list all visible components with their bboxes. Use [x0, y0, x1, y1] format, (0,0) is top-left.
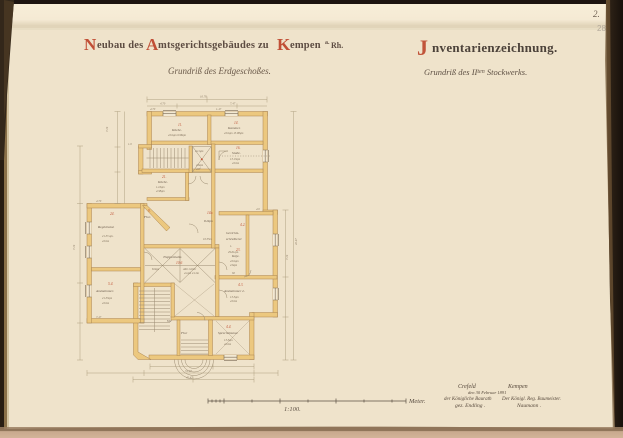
svg-text:empen: empen	[290, 40, 321, 51]
svg-text:1.0: 1.0	[128, 142, 132, 146]
svg-text:2.6qm: 2.6qm	[230, 263, 237, 267]
svg-text:8.0qm: 8.0qm	[152, 267, 159, 271]
svg-text:1.47: 1.47	[216, 107, 222, 111]
svg-text:4.61m: 4.61m	[224, 342, 231, 346]
svg-text:4.61qm 6.98qm: 4.61qm 6.98qm	[168, 133, 186, 137]
svg-text:Sprechzimmer.: Sprechzimmer.	[218, 331, 239, 335]
svg-text:4.61m: 4.61m	[232, 161, 239, 165]
svg-text:4.2.: 4.2.	[240, 223, 245, 227]
svg-text:14a.: 14a.	[207, 211, 213, 215]
svg-text:7.14: 7.14	[105, 126, 109, 132]
svg-text:4.70: 4.70	[96, 199, 102, 203]
svg-text:2.: 2.	[593, 9, 600, 19]
svg-text:4.61m: 4.61m	[230, 299, 237, 303]
svg-text:21.33 qm.: 21.33 qm.	[102, 234, 114, 238]
svg-text:60: 60	[232, 271, 236, 275]
svg-text:21.33qm: 21.33qm	[102, 296, 112, 300]
svg-text:21.: 21.	[162, 175, 167, 179]
svg-text:mtsgerichtsgebäudes zu: mtsgerichtsgebäudes zu	[158, 40, 269, 51]
svg-text:Flur: Flur	[180, 331, 188, 335]
svg-text:Vor: Vor	[167, 319, 173, 323]
svg-text:Koje.: Koje.	[231, 254, 240, 258]
svg-text:24.: 24.	[110, 212, 115, 216]
svg-text:11.: 11.	[178, 123, 182, 127]
svg-text:nventarienzeichnung.: nventarienzeichnung.	[432, 40, 558, 55]
svg-text:4.38qm: 4.38qm	[156, 189, 165, 193]
svg-text:Grundriß des IIten Stockwerks.: Grundriß des IIten Stockwerks.	[424, 67, 527, 77]
svg-text:9.: 9.	[148, 209, 151, 213]
svg-text:4.0°: 4.0°	[196, 167, 202, 171]
svg-text:Gerichts-: Gerichts-	[226, 231, 240, 235]
svg-text:4.61qm 13.98qm: 4.61qm 13.98qm	[224, 131, 243, 135]
svg-text:4.70: 4.70	[160, 102, 166, 106]
svg-text:5.4.: 5.4.	[108, 282, 113, 286]
svg-text:16.76: 16.76	[200, 95, 207, 99]
svg-text:16.: 16.	[236, 146, 241, 150]
svg-text:4.4.: 4.4.	[226, 325, 231, 329]
svg-text:42.47: 42.47	[294, 238, 298, 245]
svg-text:a.: a.	[325, 40, 330, 46]
svg-text:N: N	[84, 35, 97, 54]
svg-text:23.: 23.	[236, 248, 241, 252]
svg-text:Amtszimmer.: Amtszimmer.	[95, 289, 114, 293]
svg-text:Der Königl. Reg. Baumeister.: Der Königl. Reg. Baumeister.	[501, 397, 561, 402]
svg-text:Naumann .: Naumann .	[516, 403, 541, 409]
svg-text:7.14: 7.14	[72, 244, 76, 250]
svg-text:28: 28	[597, 24, 606, 33]
svg-text:Küche.: Küche.	[157, 180, 168, 184]
svg-text:eubau des: eubau des	[97, 40, 143, 51]
svg-text:42.47: 42.47	[186, 376, 193, 380]
svg-text:K: K	[277, 35, 291, 54]
svg-text:1.: 1.	[230, 244, 232, 248]
svg-text:Amtszimmer 2.: Amtszimmer 2.	[223, 289, 245, 293]
svg-text:4.61m: 4.61m	[102, 239, 109, 243]
svg-text:4.61m: 4.61m	[102, 301, 109, 305]
svg-text:J: J	[417, 35, 428, 60]
svg-text:4.1qm 2.12m: 4.1qm 2.12m	[184, 271, 199, 275]
svg-text:7.47: 7.47	[96, 315, 102, 319]
svg-text:Crefeld: Crefeld	[458, 383, 477, 390]
svg-text:7.47: 7.47	[230, 102, 236, 106]
svg-text:Küche.: Küche.	[171, 128, 182, 132]
svg-text:der Königliche Baurath: der Königliche Baurath	[444, 397, 492, 402]
svg-text:10.55m: 10.55m	[203, 237, 212, 241]
svg-text:Stube.: Stube.	[232, 151, 241, 155]
svg-text:Kammer.: Kammer.	[227, 126, 241, 130]
svg-text:8.0qm: 8.0qm	[204, 219, 213, 223]
svg-text:31.97: 31.97	[185, 369, 192, 373]
svg-text:1:100.: 1:100.	[284, 406, 301, 413]
svg-text:gez. Endling .: gez. Endling .	[455, 403, 485, 409]
svg-text:4.3.: 4.3.	[238, 283, 243, 287]
svg-text:4.0: 4.0	[256, 207, 260, 211]
svg-text:Flur.: Flur.	[143, 215, 151, 219]
svg-text:7.14: 7.14	[285, 254, 289, 260]
svg-text:Rh.: Rh.	[331, 41, 343, 50]
svg-text:10.6: 10.6	[176, 261, 182, 265]
svg-text:Registratur.: Registratur.	[97, 225, 115, 229]
svg-text:Treppenhalle.: Treppenhalle.	[163, 255, 182, 259]
svg-text:schreiberei: schreiberei	[226, 237, 242, 241]
svg-text:Kempen: Kempen	[507, 384, 528, 390]
svg-text:den 30 Februar 1891: den 30 Februar 1891	[468, 390, 506, 395]
svg-text:Meter.: Meter.	[408, 398, 426, 405]
svg-text:14.: 14.	[234, 121, 239, 125]
svg-text:4.70: 4.70	[150, 107, 156, 111]
svg-text:4.11qm: 4.11qm	[195, 149, 203, 153]
svg-text:Grundriß des Erdgeschoßes.: Grundriß des Erdgeschoßes.	[168, 66, 271, 76]
